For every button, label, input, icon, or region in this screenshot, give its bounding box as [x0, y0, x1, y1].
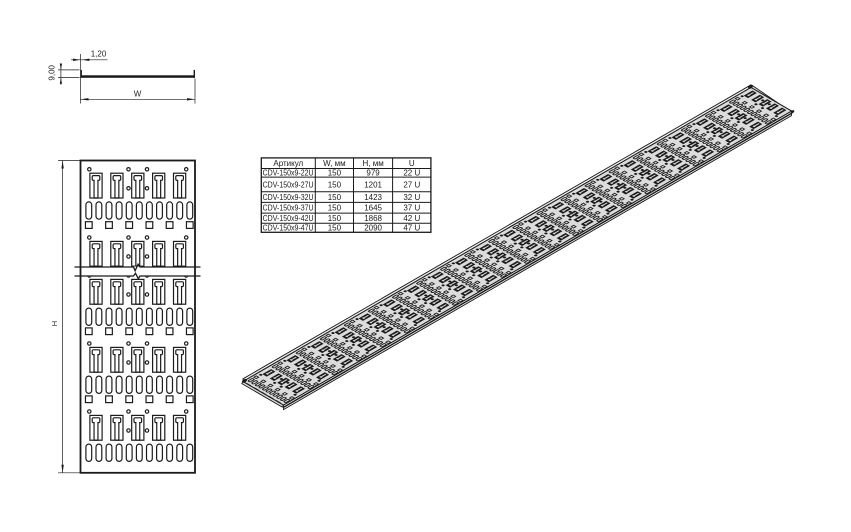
svg-text:1,20: 1,20 — [91, 50, 107, 59]
svg-text:150: 150 — [328, 224, 342, 233]
svg-text:979: 979 — [366, 169, 380, 178]
svg-text:U: U — [409, 159, 415, 168]
svg-text:CDV-150x9-47U: CDV-150x9-47U — [263, 224, 314, 233]
svg-text:9,00: 9,00 — [48, 64, 57, 80]
svg-text:CDV-150x9-37U: CDV-150x9-37U — [263, 204, 314, 213]
svg-text:W: W — [134, 90, 142, 99]
svg-text:1645: 1645 — [364, 204, 382, 213]
svg-text:22 U: 22 U — [403, 169, 420, 178]
svg-text:42 U: 42 U — [403, 214, 420, 223]
svg-text:1201: 1201 — [364, 180, 382, 189]
svg-text:1868: 1868 — [364, 214, 382, 223]
svg-text:150: 150 — [328, 214, 342, 223]
svg-text:27 U: 27 U — [403, 180, 420, 189]
svg-text:Артикул: Артикул — [273, 159, 303, 168]
svg-text:150: 150 — [328, 180, 342, 189]
svg-text:150: 150 — [328, 193, 342, 202]
svg-text:H: H — [50, 321, 59, 326]
svg-text:CDV-150x9-42U: CDV-150x9-42U — [263, 214, 314, 223]
svg-text:CDV-150x9-22U: CDV-150x9-22U — [263, 169, 314, 178]
svg-text:32 U: 32 U — [403, 193, 420, 202]
svg-text:150: 150 — [328, 204, 342, 213]
svg-text:CDV-150x9-32U: CDV-150x9-32U — [263, 193, 314, 202]
svg-text:2090: 2090 — [364, 224, 382, 233]
svg-text:37 U: 37 U — [403, 204, 420, 213]
svg-text:H, мм: H, мм — [362, 159, 383, 168]
svg-text:47 U: 47 U — [403, 224, 420, 233]
svg-text:W, мм: W, мм — [323, 159, 346, 168]
svg-text:CDV-150x9-27U: CDV-150x9-27U — [263, 180, 314, 189]
svg-text:1423: 1423 — [364, 193, 382, 202]
svg-text:150: 150 — [328, 169, 342, 178]
